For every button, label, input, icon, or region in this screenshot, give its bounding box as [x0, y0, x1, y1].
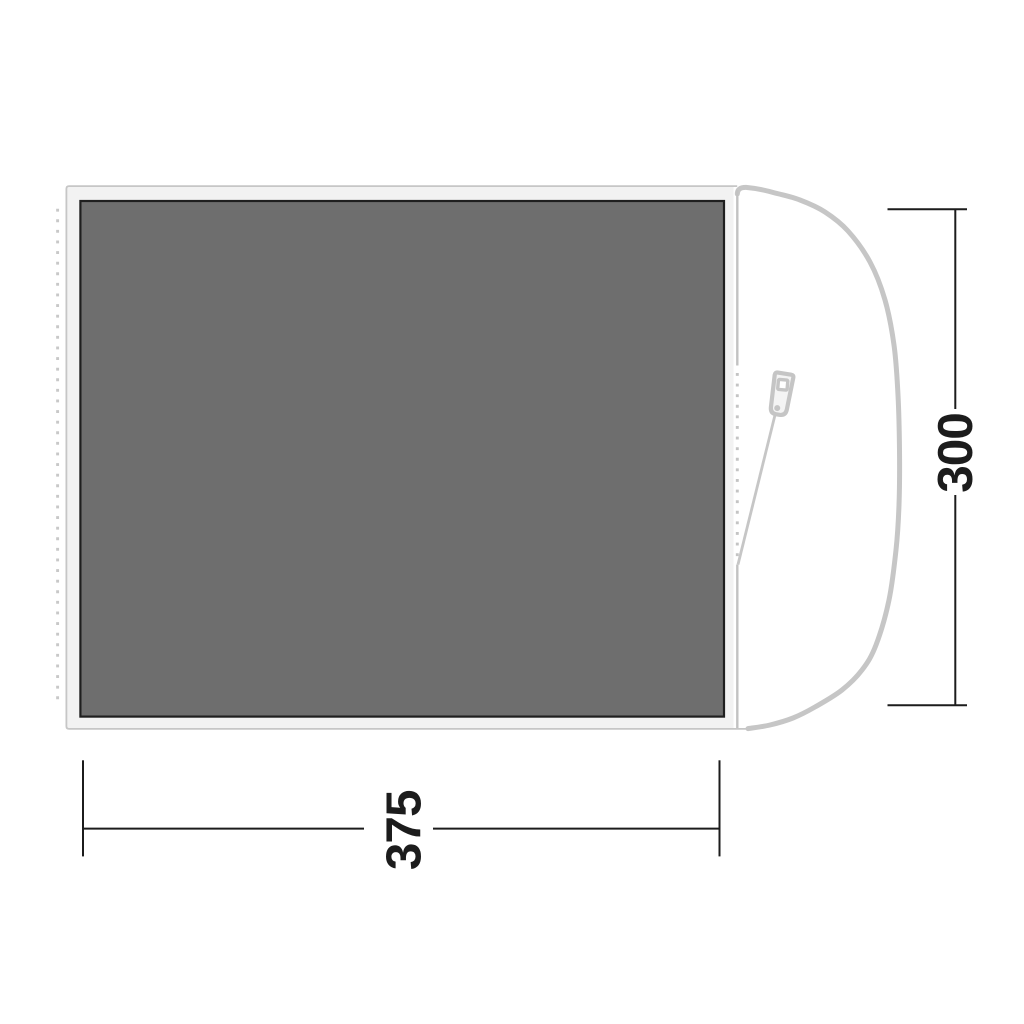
- svg-text:375: 375: [376, 790, 431, 870]
- svg-text:300: 300: [928, 413, 983, 493]
